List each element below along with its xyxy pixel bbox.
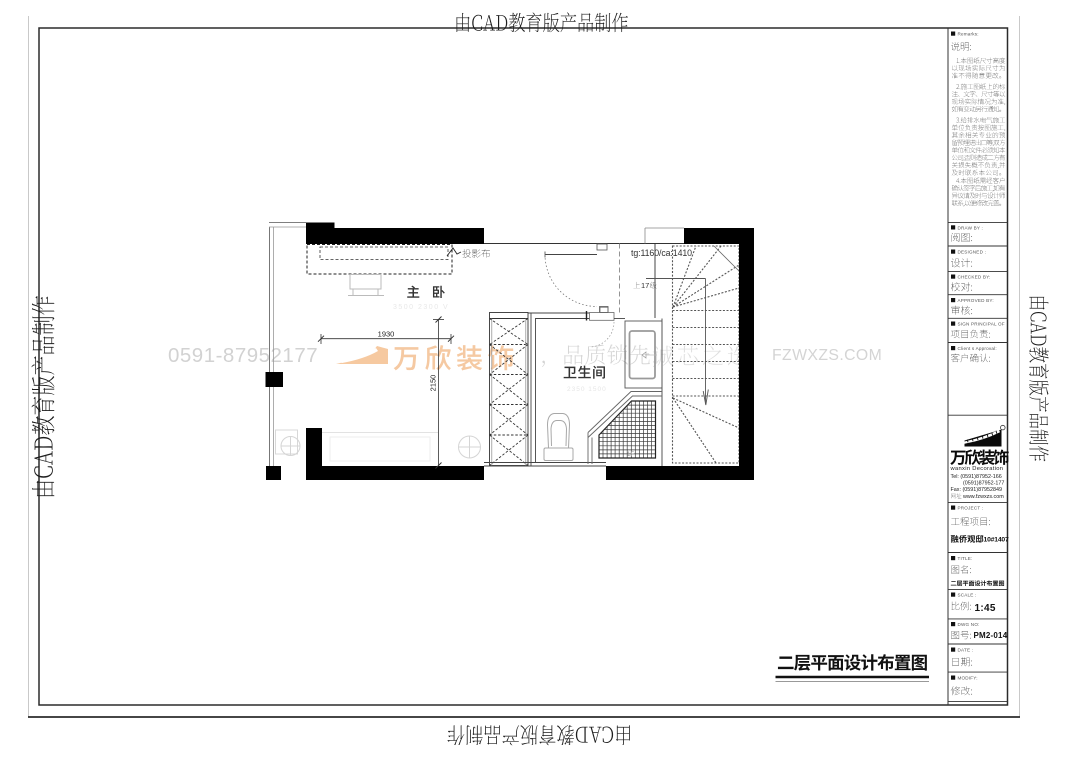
svg-text:3500 2300 V: 3500 2300 V xyxy=(393,304,449,311)
svg-text:Client s Approval:: Client s Approval: xyxy=(958,346,997,351)
svg-text:APPROVED BY:: APPROVED BY: xyxy=(958,298,994,303)
svg-text:2350 1500: 2350 1500 xyxy=(567,386,607,393)
svg-text:2150: 2150 xyxy=(429,375,438,392)
svg-text:PROJECT :: PROJECT : xyxy=(958,506,984,511)
svg-text:Remarks:: Remarks: xyxy=(958,32,979,37)
svg-text:17: 17 xyxy=(641,281,649,290)
svg-text:DESIGNED :: DESIGNED : xyxy=(958,250,987,255)
svg-text:1:45: 1:45 xyxy=(975,603,996,614)
svg-text:FZWXZS.COM: FZWXZS.COM xyxy=(772,347,882,364)
svg-text:(0591)87952-177: (0591)87952-177 xyxy=(963,480,1004,486)
svg-text:Fax: (0591)87952849: Fax: (0591)87952849 xyxy=(951,487,1003,493)
svg-text:DATE :: DATE : xyxy=(958,648,974,653)
svg-text:TITLE:: TITLE: xyxy=(958,556,973,561)
svg-text:Tel: (0591)87952-166: Tel: (0591)87952-166 xyxy=(951,474,1002,480)
svg-text:www.fzwxzs.com: www.fzwxzs.com xyxy=(962,494,1004,500)
svg-text:0591-87952177: 0591-87952177 xyxy=(168,344,318,367)
svg-text:tg:1160/ca:1410: tg:1160/ca:1410 xyxy=(631,248,692,258)
svg-text:CHECKED BY:: CHECKED BY: xyxy=(958,275,991,280)
svg-text:MODIFY:: MODIFY: xyxy=(958,676,978,681)
svg-text:DWG NO:: DWG NO: xyxy=(958,622,980,627)
svg-text:wanxin Decoration: wanxin Decoration xyxy=(950,466,1004,472)
svg-text:10#1407: 10#1407 xyxy=(984,537,1009,544)
svg-text:PM2-014: PM2-014 xyxy=(974,631,1008,640)
svg-text:SIGN PRINCIPAL OF: SIGN PRINCIPAL OF xyxy=(958,322,1005,327)
svg-text:DRAW BY :: DRAW BY : xyxy=(958,226,984,231)
svg-text:SCALE :: SCALE : xyxy=(958,593,977,598)
svg-text:1F: 1F xyxy=(627,452,634,458)
svg-text:1930: 1930 xyxy=(378,330,395,339)
